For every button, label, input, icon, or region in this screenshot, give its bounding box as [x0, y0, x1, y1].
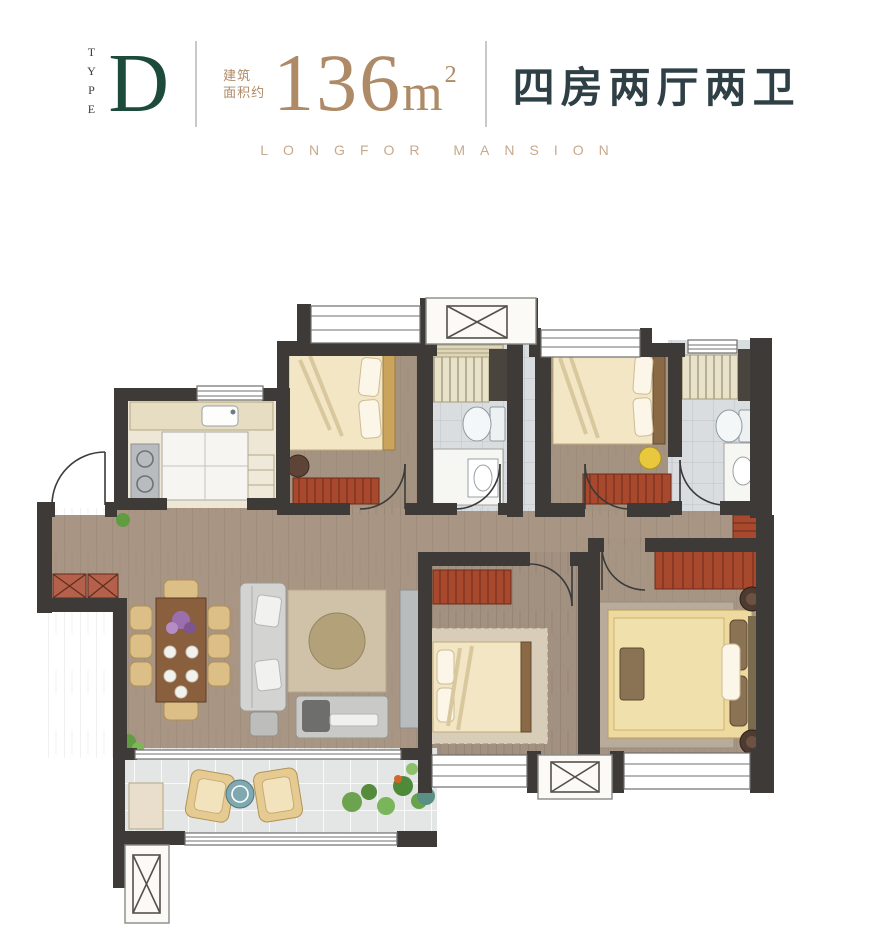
floor-plan	[0, 0, 884, 948]
plant-icon	[116, 513, 130, 527]
round-table-icon	[226, 780, 254, 808]
bath-window	[688, 340, 737, 353]
shower-icon	[433, 357, 489, 402]
toilet-icon	[716, 410, 752, 442]
sliding-door	[135, 750, 401, 759]
chaise-icon	[296, 696, 388, 738]
rug-icon	[288, 590, 386, 692]
shaft	[125, 845, 169, 923]
shower-icon	[680, 355, 738, 399]
kitchen-window	[197, 386, 263, 400]
bath-cabinet	[489, 349, 509, 401]
dresser-icon	[583, 474, 671, 504]
floor-plan-sheet: TYPE D 建筑 面积约 136m2 四房两厅两卫 LONGFOR MANSI…	[0, 0, 884, 948]
shoe-cabinet-icon	[53, 574, 118, 598]
shaft	[538, 755, 612, 799]
bay-window	[432, 755, 527, 787]
bay-window	[624, 753, 750, 789]
entry-door	[52, 452, 105, 505]
toilet-icon	[463, 407, 505, 441]
bay-window	[541, 330, 640, 357]
pot-icon	[287, 455, 309, 477]
headboard	[383, 352, 395, 450]
headboard	[521, 642, 531, 732]
kitchen-sink-icon	[202, 406, 238, 426]
shaft	[426, 298, 536, 344]
headboard	[653, 352, 665, 444]
side-table-icon	[250, 712, 278, 736]
dresser-icon	[293, 478, 379, 504]
balcony-cabinet	[129, 783, 163, 829]
fridge-icon	[248, 455, 274, 500]
bay-window	[311, 306, 420, 343]
bench-icon	[620, 648, 644, 700]
bedroom-2	[287, 352, 395, 504]
stool-icon	[639, 447, 661, 469]
balcony-railing	[185, 833, 397, 845]
